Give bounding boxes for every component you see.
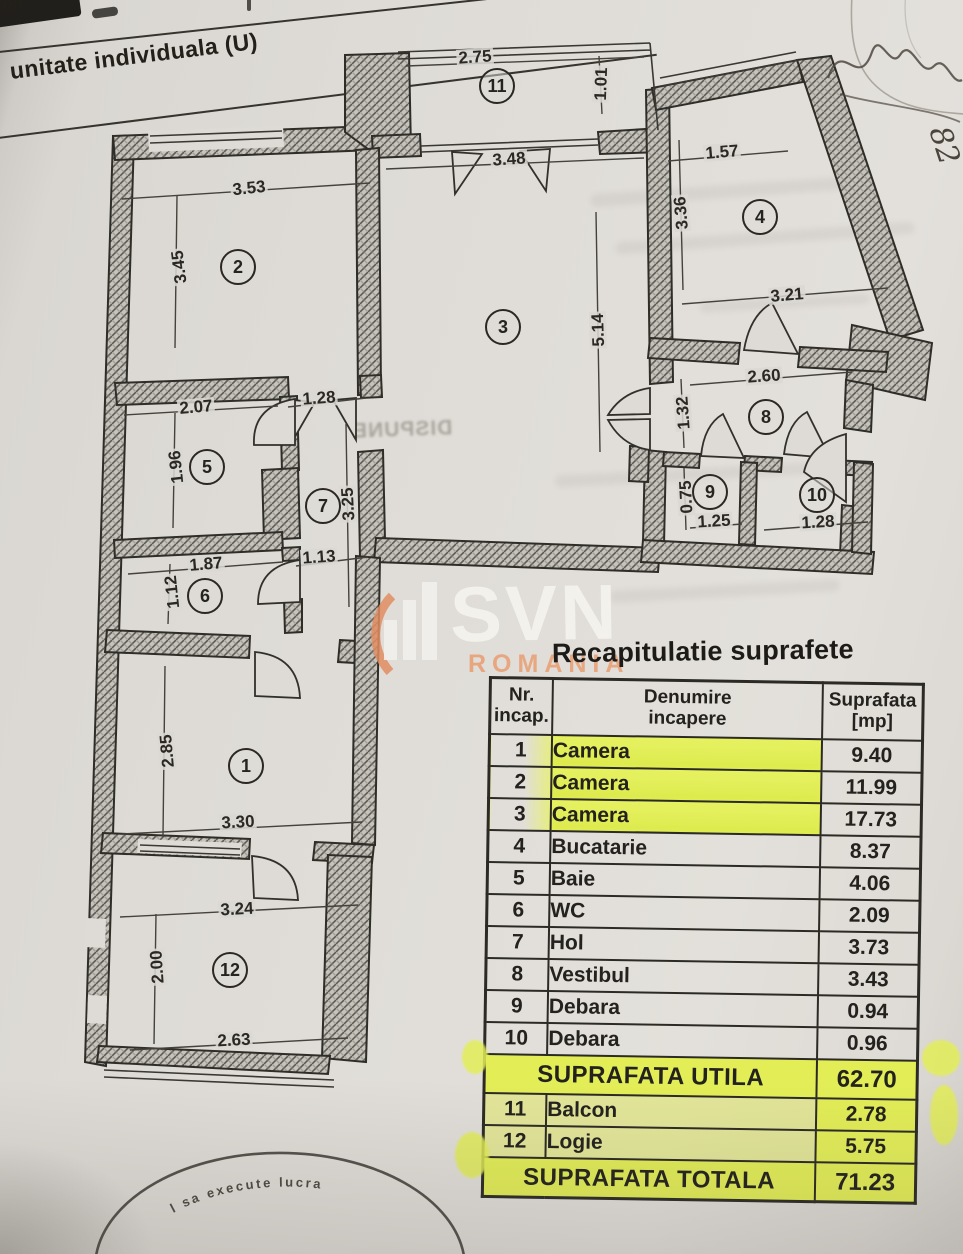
scanned-page: tea unitate individuala (U) DISPUNE [0,0,963,1254]
round-stamp: l sa execute lucra [0,0,963,1254]
svg-text:l sa execute lucra: l sa execute lucra [168,1175,324,1216]
stamp-text: l sa execute lucra [168,1175,324,1216]
